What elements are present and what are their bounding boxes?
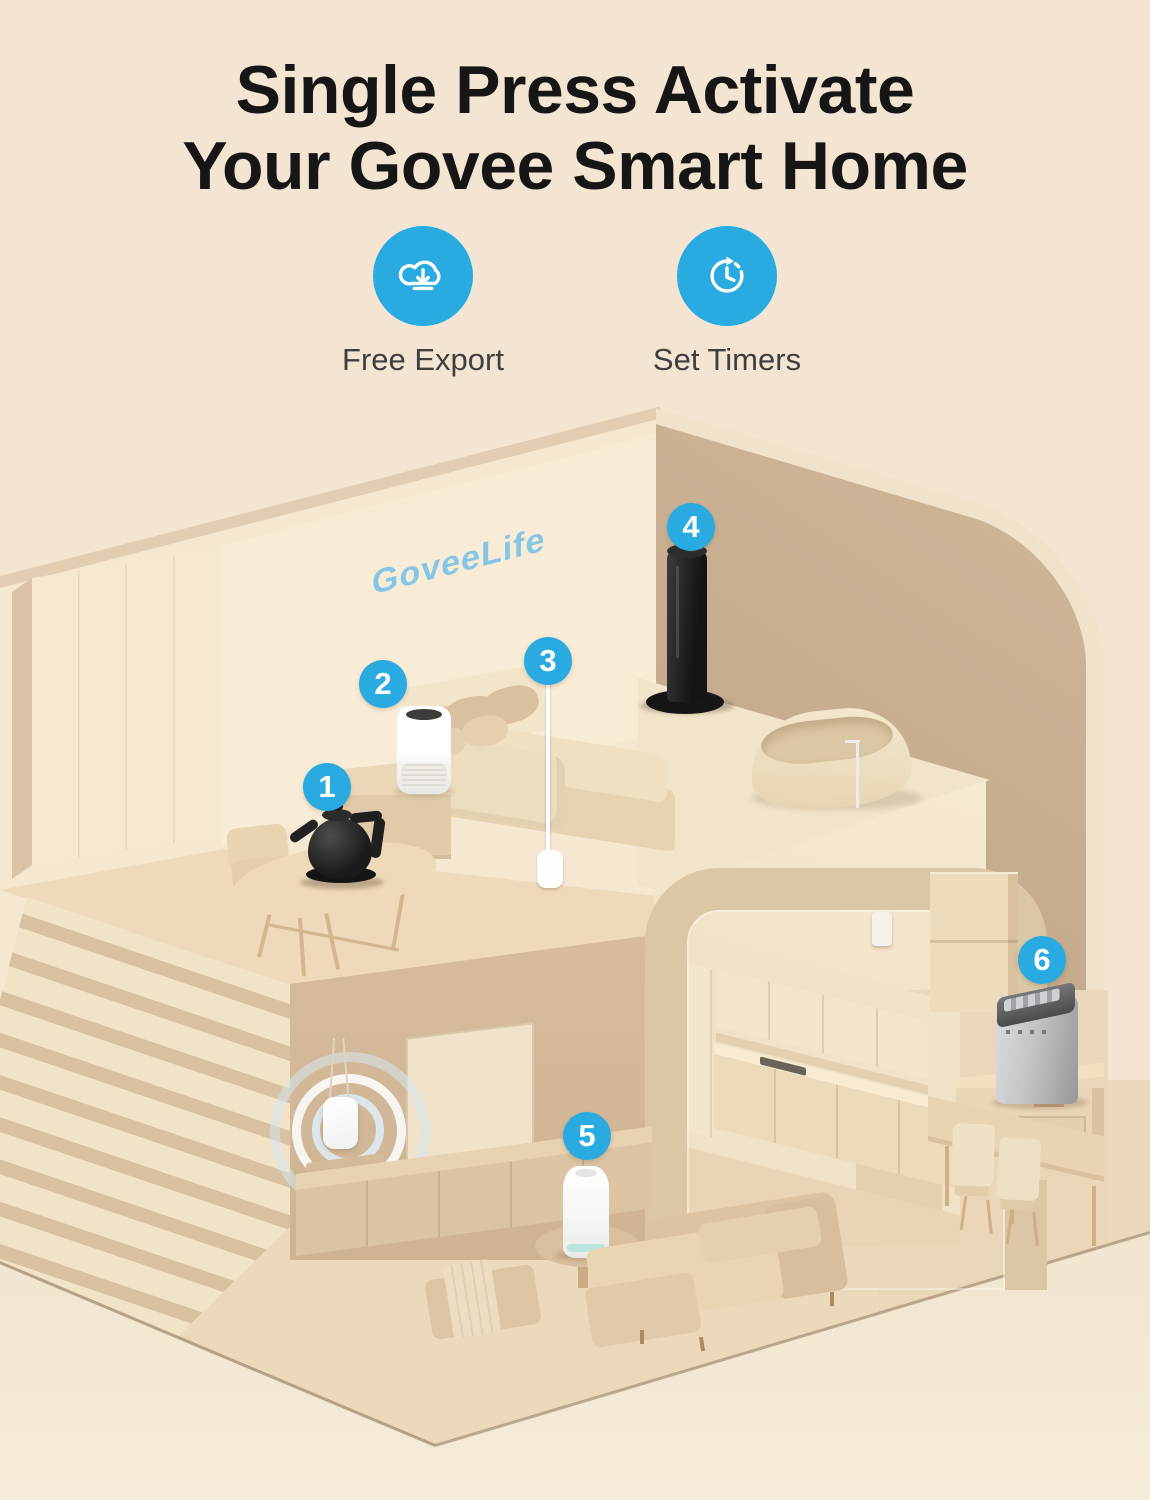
sofa-leg: [830, 1292, 834, 1306]
dining-chair: [996, 1137, 1041, 1201]
cabinet-seam: [930, 940, 1018, 943]
feature-label: Set Timers: [653, 342, 801, 378]
bathtub-faucet: [856, 740, 859, 808]
cloud-download-icon: [373, 226, 473, 326]
wall-switch: [872, 912, 892, 946]
marker-ice-maker: 6: [1018, 936, 1066, 984]
tower-fan: [667, 550, 707, 702]
title-line-1: Single Press Activate: [0, 52, 1150, 128]
smart-button-remote: [323, 1097, 358, 1149]
feature-free-export: Free Export: [318, 226, 528, 378]
smart-kettle: [308, 818, 372, 878]
dining-chair: [951, 1123, 995, 1186]
smart-home-promo-graphic: Single Press Activate Your Govee Smart H…: [0, 0, 1150, 1500]
feature-set-timers: Set Timers: [622, 226, 832, 378]
air-purifier-vent: [406, 709, 442, 720]
dining-table-leg: [1092, 1186, 1096, 1246]
air-purifier-filter-mesh: [401, 763, 447, 789]
marker-smart-kettle: 1: [303, 763, 351, 811]
ice-maker-controls: [1006, 1030, 1046, 1034]
humidifier: [563, 1166, 609, 1258]
govee-life-wall-logo: GoveeLife: [372, 520, 545, 604]
feature-list: Free Export Set Timers: [0, 226, 1150, 378]
title-line-2: Your Govee Smart Home: [0, 128, 1150, 204]
floor-lamp-pole: [546, 670, 550, 862]
tall-cabinet: [930, 872, 1018, 1012]
tower-fan-vent: [676, 566, 679, 658]
ice-maker: [996, 996, 1078, 1104]
air-purifier: [397, 706, 451, 794]
timer-icon: [677, 226, 777, 326]
humidifier-nozzle: [575, 1169, 597, 1177]
sofa-leg: [640, 1330, 644, 1344]
feature-label: Free Export: [342, 342, 504, 378]
marker-humidifier: 5: [563, 1112, 611, 1160]
bathtub-faucet-spout: [845, 740, 860, 743]
wardrobe-side-panel: [12, 578, 32, 879]
marker-floor-lamp: 3: [524, 637, 572, 685]
dining-table-leg: [945, 1146, 949, 1206]
marker-tower-fan: 4: [667, 503, 715, 551]
marker-air-purifier: 2: [359, 660, 407, 708]
wardrobe: [32, 548, 220, 865]
floor-lamp-base: [537, 850, 563, 888]
page-title: Single Press Activate Your Govee Smart H…: [0, 52, 1150, 204]
